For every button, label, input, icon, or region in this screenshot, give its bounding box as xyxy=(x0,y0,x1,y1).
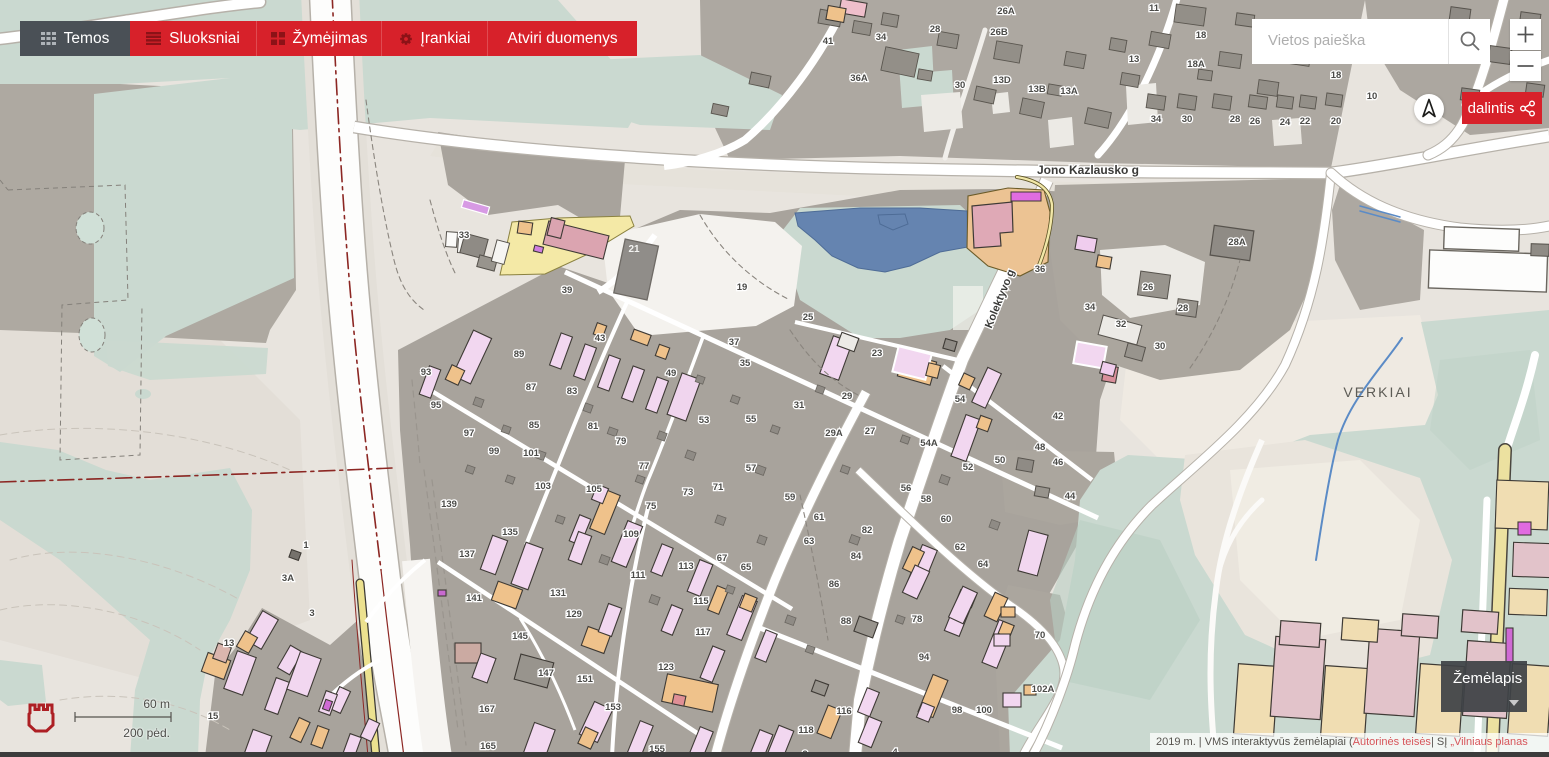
svg-text:13A: 13A xyxy=(1060,86,1078,97)
svg-text:65: 65 xyxy=(741,562,752,573)
svg-text:34: 34 xyxy=(876,32,887,43)
svg-text:57: 57 xyxy=(746,463,757,474)
svg-text:135: 135 xyxy=(502,527,519,538)
svg-text:141: 141 xyxy=(466,593,483,604)
svg-text:165: 165 xyxy=(480,741,497,752)
svg-text:13: 13 xyxy=(224,638,235,649)
svg-text:22: 22 xyxy=(1300,116,1311,127)
svg-text:50: 50 xyxy=(995,455,1006,466)
svg-text:37: 37 xyxy=(729,337,740,348)
svg-text:118: 118 xyxy=(798,725,813,736)
svg-text:77: 77 xyxy=(639,461,650,472)
svg-text:18: 18 xyxy=(1196,30,1207,41)
svg-text:63: 63 xyxy=(804,536,815,547)
svg-text:81: 81 xyxy=(588,421,599,432)
svg-text:153: 153 xyxy=(605,702,621,713)
svg-text:28A: 28A xyxy=(1228,237,1246,248)
svg-text:97: 97 xyxy=(464,428,475,439)
svg-text:13B: 13B xyxy=(1028,84,1046,95)
svg-text:87: 87 xyxy=(526,382,537,393)
svg-text:48: 48 xyxy=(1035,442,1046,453)
svg-text:3A: 3A xyxy=(282,573,294,584)
svg-text:113: 113 xyxy=(678,561,693,572)
svg-text:10: 10 xyxy=(1367,91,1378,102)
svg-text:26: 26 xyxy=(1143,282,1154,293)
svg-text:34: 34 xyxy=(1085,302,1096,313)
svg-text:59: 59 xyxy=(785,492,796,503)
svg-text:31: 31 xyxy=(794,400,805,411)
svg-text:53: 53 xyxy=(699,415,710,426)
svg-text:28: 28 xyxy=(930,24,941,35)
svg-text:27: 27 xyxy=(865,426,876,437)
svg-text:26: 26 xyxy=(1250,116,1261,127)
svg-text:25: 25 xyxy=(803,312,814,323)
svg-text:89: 89 xyxy=(514,349,525,360)
svg-text:100: 100 xyxy=(976,705,992,716)
svg-text:15: 15 xyxy=(208,711,219,722)
svg-text:3: 3 xyxy=(309,608,314,619)
svg-text:75: 75 xyxy=(646,501,657,512)
svg-text:VERKIAI: VERKIAI xyxy=(1343,384,1412,400)
svg-text:19: 19 xyxy=(737,282,748,293)
svg-text:35: 35 xyxy=(740,358,751,369)
svg-text:26B: 26B xyxy=(990,27,1008,38)
svg-text:18: 18 xyxy=(1331,70,1342,81)
svg-text:21: 21 xyxy=(628,244,640,255)
svg-text:64: 64 xyxy=(978,559,989,570)
svg-text:115: 115 xyxy=(693,596,709,607)
svg-text:167: 167 xyxy=(479,704,495,715)
svg-text:20: 20 xyxy=(1331,116,1342,127)
svg-text:103: 103 xyxy=(535,481,551,492)
svg-text:139: 139 xyxy=(441,499,457,510)
svg-text:94: 94 xyxy=(919,652,930,663)
svg-text:56: 56 xyxy=(901,483,912,494)
svg-text:24: 24 xyxy=(1280,117,1291,128)
svg-text:61: 61 xyxy=(814,512,825,523)
svg-text:33: 33 xyxy=(459,230,470,241)
svg-text:84: 84 xyxy=(851,551,862,562)
svg-text:86: 86 xyxy=(829,579,840,590)
svg-text:29: 29 xyxy=(842,391,853,402)
svg-text:62: 62 xyxy=(955,542,966,553)
svg-text:137: 137 xyxy=(459,549,475,560)
svg-text:111: 111 xyxy=(631,570,647,581)
svg-text:151: 151 xyxy=(577,674,594,685)
svg-text:117: 117 xyxy=(695,627,710,638)
svg-text:29A: 29A xyxy=(825,428,843,439)
svg-text:99: 99 xyxy=(489,446,500,457)
svg-text:36: 36 xyxy=(1035,264,1046,275)
svg-text:71: 71 xyxy=(713,482,724,493)
svg-text:95: 95 xyxy=(431,400,442,411)
svg-text:13D: 13D xyxy=(993,75,1011,86)
svg-text:58: 58 xyxy=(921,494,932,505)
svg-text:28: 28 xyxy=(1178,303,1189,314)
svg-text:30: 30 xyxy=(1155,341,1166,352)
svg-text:18A: 18A xyxy=(1187,59,1205,70)
svg-text:44: 44 xyxy=(1065,491,1076,502)
svg-text:102A: 102A xyxy=(1032,684,1055,695)
svg-text:60: 60 xyxy=(941,514,952,525)
svg-text:13: 13 xyxy=(1129,54,1140,65)
svg-text:46: 46 xyxy=(1053,457,1064,468)
svg-text:11: 11 xyxy=(1149,3,1160,14)
svg-text:30: 30 xyxy=(955,80,966,91)
svg-text:34: 34 xyxy=(1151,114,1162,125)
svg-text:73: 73 xyxy=(683,487,694,498)
svg-text:131: 131 xyxy=(550,588,567,599)
svg-text:105: 105 xyxy=(586,484,603,495)
svg-text:1: 1 xyxy=(303,540,309,551)
svg-text:42: 42 xyxy=(1053,411,1064,422)
svg-text:101: 101 xyxy=(523,448,540,459)
svg-text:98: 98 xyxy=(952,705,963,716)
svg-text:109: 109 xyxy=(623,529,639,540)
svg-text:123: 123 xyxy=(658,662,674,673)
svg-text:39: 39 xyxy=(562,285,573,296)
svg-text:85: 85 xyxy=(529,420,540,431)
svg-text:43: 43 xyxy=(595,333,606,344)
svg-text:83: 83 xyxy=(567,386,578,397)
svg-text:129: 129 xyxy=(566,609,582,620)
svg-text:41: 41 xyxy=(823,36,834,47)
svg-text:147: 147 xyxy=(538,668,554,679)
svg-text:116: 116 xyxy=(836,706,851,717)
svg-text:78: 78 xyxy=(912,614,923,625)
svg-text:23: 23 xyxy=(872,348,883,359)
svg-text:79: 79 xyxy=(616,436,627,447)
svg-text:145: 145 xyxy=(512,631,529,642)
svg-text:88: 88 xyxy=(841,616,852,627)
svg-text:93: 93 xyxy=(421,367,432,378)
svg-text:26A: 26A xyxy=(997,6,1015,17)
svg-text:32: 32 xyxy=(1116,319,1127,330)
svg-text:54: 54 xyxy=(955,394,966,405)
svg-text:54A: 54A xyxy=(920,438,938,449)
svg-text:52: 52 xyxy=(963,462,974,473)
svg-text:55: 55 xyxy=(746,414,757,425)
svg-text:Jono Kazlausko g: Jono Kazlausko g xyxy=(1037,163,1139,177)
svg-text:49: 49 xyxy=(666,368,677,379)
svg-text:82: 82 xyxy=(862,525,873,536)
svg-text:30: 30 xyxy=(1182,114,1193,125)
svg-text:70: 70 xyxy=(1035,630,1046,641)
svg-text:36A: 36A xyxy=(850,73,868,84)
svg-text:28: 28 xyxy=(1230,114,1241,125)
svg-text:67: 67 xyxy=(717,553,728,564)
